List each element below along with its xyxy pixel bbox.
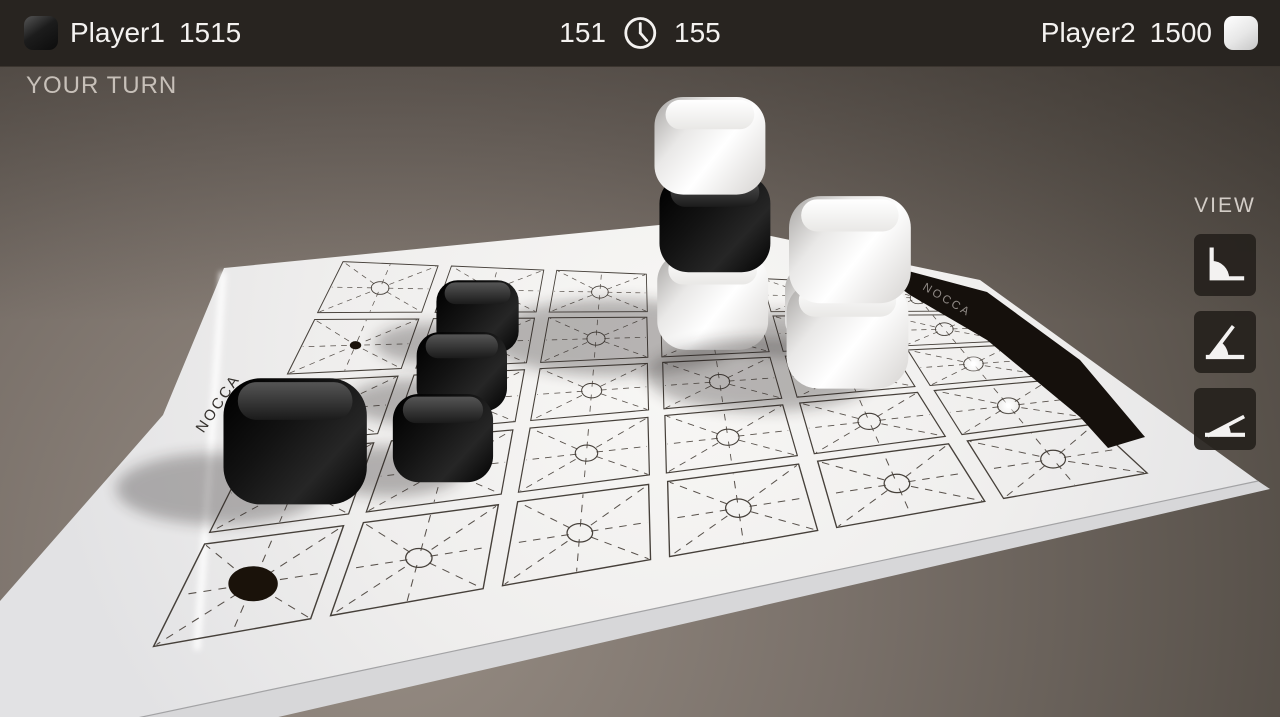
view-angle-high-button[interactable] (1194, 234, 1256, 296)
turn-status: YOUR TURN (26, 72, 177, 100)
player1-info: Player1 1515 (24, 16, 241, 50)
player1-name: Player1 (70, 17, 165, 49)
game-stage: NOCCA NOCCA Player1 1515 151 155 Player2… (0, 0, 1280, 717)
board-sparkle (999, 397, 1017, 415)
timer-right: 155 (674, 17, 721, 49)
black-piece (223, 378, 366, 504)
black-piece (393, 394, 493, 482)
white-piece (654, 97, 765, 195)
player1-piece-icon (24, 16, 58, 50)
view-angle-low-button[interactable] (1194, 388, 1256, 450)
board-sparkle (964, 355, 982, 373)
view-panel-label: VIEW (1194, 194, 1256, 218)
player2-name: Player2 (1041, 17, 1136, 49)
view-panel: VIEW (1193, 194, 1257, 465)
player2-info: Player2 1500 (1041, 16, 1258, 50)
timer-left: 151 (559, 17, 606, 49)
top-bar: Player1 1515 151 155 Player2 1500 (0, 0, 1280, 67)
camera-angle-high-icon (1200, 240, 1250, 290)
player2-piece-icon (1224, 16, 1258, 50)
view-angle-mid-button[interactable] (1194, 311, 1256, 373)
camera-angle-low-icon (1200, 394, 1250, 444)
player2-score: 1500 (1150, 17, 1212, 49)
player1-score: 1515 (179, 17, 241, 49)
camera-angle-mid-icon (1200, 317, 1250, 367)
timer-group: 151 155 (559, 13, 720, 53)
white-piece (789, 196, 911, 303)
clock-icon (620, 13, 660, 53)
scene-canvas: NOCCA NOCCA (0, 0, 1280, 717)
